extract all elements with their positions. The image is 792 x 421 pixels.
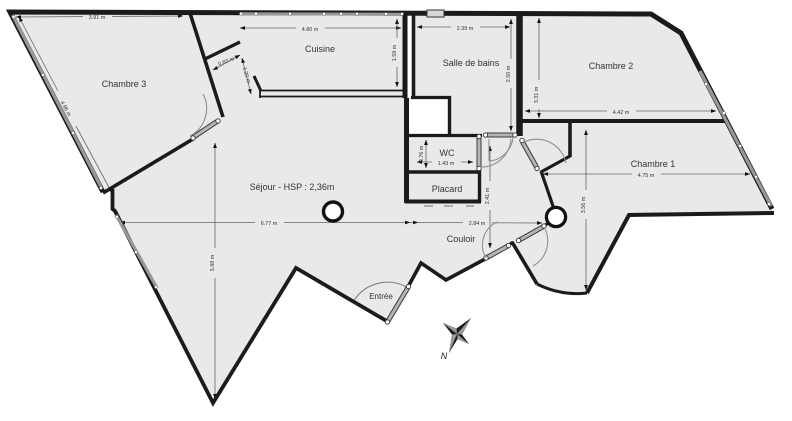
svg-text:Séjour - HSP : 2,36m: Séjour - HSP : 2,36m bbox=[250, 182, 335, 192]
svg-text:Salle de bains: Salle de bains bbox=[443, 58, 500, 68]
svg-text:Cuisine: Cuisine bbox=[305, 44, 335, 54]
svg-text:1.59 m: 1.59 m bbox=[392, 44, 398, 61]
svg-text:2.50 m: 2.50 m bbox=[506, 65, 512, 82]
svg-text:3.31 m: 3.31 m bbox=[534, 86, 540, 103]
svg-text:3.56 m: 3.56 m bbox=[581, 196, 587, 213]
svg-text:4.42 m: 4.42 m bbox=[613, 110, 630, 116]
svg-text:0.76 m: 0.76 m bbox=[419, 145, 425, 162]
svg-text:2.84 m: 2.84 m bbox=[469, 221, 486, 227]
svg-text:2.41 m: 2.41 m bbox=[485, 187, 491, 204]
svg-text:WC: WC bbox=[440, 148, 455, 158]
svg-text:2.39 m: 2.39 m bbox=[457, 26, 474, 32]
svg-text:5.98 m: 5.98 m bbox=[210, 254, 216, 271]
svg-text:Chambre 2: Chambre 2 bbox=[589, 61, 634, 71]
svg-text:4.75 m: 4.75 m bbox=[638, 173, 655, 179]
svg-text:1.43 m: 1.43 m bbox=[438, 161, 455, 167]
svg-text:Placard: Placard bbox=[432, 184, 463, 194]
svg-text:Entrée: Entrée bbox=[369, 292, 393, 301]
svg-text:3.91 m: 3.91 m bbox=[89, 15, 106, 21]
svg-text:Chambre 3: Chambre 3 bbox=[102, 79, 147, 89]
svg-text:Chambre 1: Chambre 1 bbox=[631, 159, 676, 169]
svg-text:N: N bbox=[441, 351, 448, 361]
svg-text:Couloir: Couloir bbox=[447, 234, 476, 244]
svg-text:4.80 m: 4.80 m bbox=[302, 27, 319, 33]
svg-text:6.77 m: 6.77 m bbox=[261, 221, 278, 227]
